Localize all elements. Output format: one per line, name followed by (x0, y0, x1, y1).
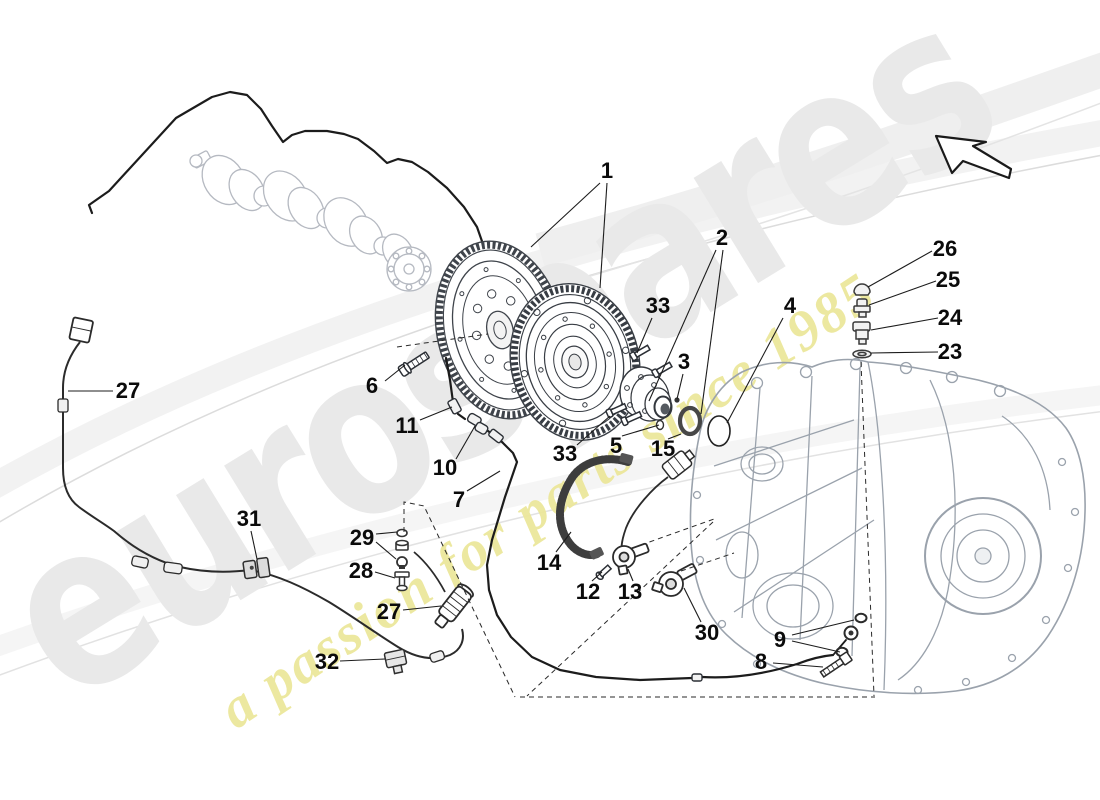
parts-diagram-canvas: eurospares a passion for parts since 198… (0, 0, 1100, 800)
part-label-24: 24 (938, 307, 962, 329)
washer-part-9 (856, 614, 867, 622)
part-label-30: 30 (695, 622, 719, 644)
crankshaft-sketch (190, 147, 431, 291)
part-label-27-a: 27 (116, 380, 140, 402)
part-label-4: 4 (784, 295, 796, 317)
washer-part-23 (853, 350, 871, 358)
diagram-artwork: eurospares a passion for parts since 198… (0, 0, 1100, 800)
part-label-14: 14 (537, 552, 561, 574)
part-label-10: 10 (433, 457, 457, 479)
part-label-3: 3 (678, 351, 690, 373)
cap-part-26 (854, 284, 870, 295)
part-label-23: 23 (938, 341, 962, 363)
part-label-33-b: 33 (553, 443, 577, 465)
part-label-6: 6 (366, 375, 378, 397)
part-label-15: 15 (651, 438, 675, 460)
pipe-ferrule (692, 674, 702, 681)
part-label-33-a: 33 (646, 295, 670, 317)
part-label-13: 13 (618, 581, 642, 603)
part-label-25: 25 (936, 269, 960, 291)
connector-part-27 (69, 317, 93, 343)
bracket-part-32 (384, 649, 408, 675)
part-label-12: 12 (576, 581, 600, 603)
part-label-31: 31 (237, 508, 261, 530)
part-label-2: 2 (716, 227, 728, 249)
part-label-32: 32 (315, 651, 339, 673)
part-label-11: 11 (395, 415, 418, 437)
part-label-27-b: 27 (377, 601, 401, 623)
part-label-9: 9 (774, 629, 786, 651)
part-label-29: 29 (350, 527, 374, 549)
part-label-1: 1 (601, 160, 613, 182)
part-label-5: 5 (610, 435, 622, 457)
clip-part-31 (243, 557, 270, 579)
part-label-26: 26 (933, 238, 957, 260)
fitting-part-24 (853, 322, 870, 344)
part-label-7: 7 (453, 489, 465, 511)
sensor-part-13 (613, 543, 649, 574)
part-label-8: 8 (755, 651, 767, 673)
part-label-28: 28 (349, 560, 373, 582)
